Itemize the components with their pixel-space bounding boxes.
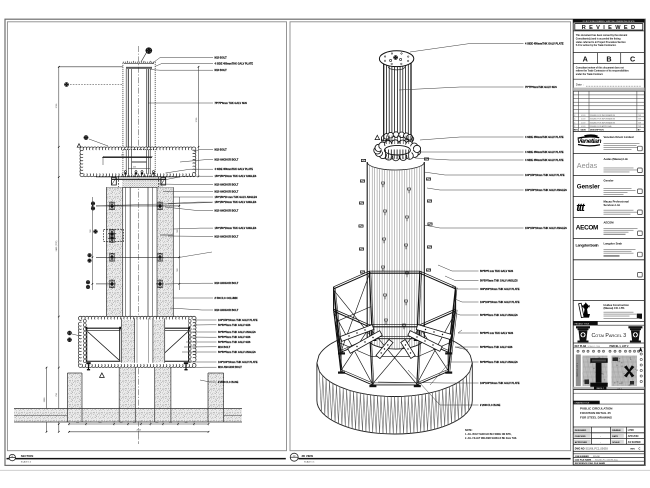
svg-text:Services Ltd.: Services Ltd. (604, 203, 621, 207)
svg-text:75*75*6mm THK GALV SHS: 75*75*6mm THK GALV SHS (215, 102, 248, 105)
svg-text:Venetian: Venetian (577, 138, 601, 145)
svg-text:C: C (639, 447, 641, 451)
svg-text:NOTE:: NOTE: (465, 429, 473, 432)
svg-text:M10 BOLT: M10 BOLT (218, 346, 231, 349)
svg-text:M10 BOLT: M10 BOLT (215, 69, 228, 72)
svg-text:3D VIEW: 3D VIEW (302, 454, 314, 458)
svg-text:M10 ANCHOR BOLT: M10 ANCHOR BOLT (215, 191, 239, 194)
svg-text:TW: TW (638, 122, 641, 124)
svg-text:300: 300 (155, 422, 158, 424)
svg-text:01/09: 01/09 (581, 115, 586, 117)
svg-text:4 SIDE 450mmTHK GALV PLATE: 4 SIDE 450mmTHK GALV PLATE (525, 43, 564, 46)
svg-text:Consultants(s) and is accorded: Consultants(s) and is accorded the listi… (576, 38, 621, 41)
svg-text:This document has been revised: This document has been revised by the re… (576, 34, 628, 37)
svg-text:(Macau) CO. LTD.: (Macau) CO. LTD. (604, 306, 626, 310)
svg-text:M10 ANCHOR BOLT: M10 ANCHOR BOLT (215, 235, 239, 238)
svg-text:Aedas: Aedas (577, 161, 598, 170)
svg-text:Consultant review of this docu: Consultant review of this document does … (576, 66, 624, 69)
svg-text:FOUNTAIN DETAIL 25: FOUNTAIN DETAIL 25 (580, 411, 611, 415)
svg-text:500: 500 (90, 228, 92, 232)
svg-text:4 SIDE 450mmTHK GALV PLATE: 4 SIDE 450mmTHK GALV PLATE (525, 159, 564, 162)
svg-text:50*50*5mm THK GALV ANGLES: 50*50*5mm THK GALV ANGLES (480, 280, 518, 283)
svg-text:M10 ANCHOR BOLT: M10 ANCHOR BOLT (215, 309, 239, 312)
svg-text:DRAWN: DRAWN (612, 429, 621, 432)
svg-text:01/09: 01/09 (581, 119, 586, 121)
svg-text:M10 ANCHOR BOLT: M10 ANCHOR BOLT (215, 184, 239, 187)
svg-text:Date :: Date : (576, 83, 584, 87)
svg-text:500: 500 (177, 267, 179, 271)
svg-text:450: 450 (133, 422, 136, 424)
svg-text:COTAI PARCEL 3: COTAI PARCEL 3 (591, 333, 626, 339)
svg-text:1796: 1796 (196, 117, 198, 122)
svg-text:150*150*10 mm THK GALV ANGLES: 150*150*10 mm THK GALV ANGLES (215, 196, 258, 199)
svg-text:300: 300 (76, 422, 79, 424)
svg-text:Langdon Seah: Langdon Seah (604, 242, 623, 246)
svg-text:300: 300 (120, 422, 123, 424)
svg-text:SCALE 1:7500: SCALE 1:7500 (588, 345, 601, 348)
svg-text:2864: 2864 (136, 429, 141, 431)
svg-text:100*100*10mm THK GALV PLATE: 100*100*10mm THK GALV PLATE (218, 361, 258, 364)
svg-text:4 SIDE 450mmTHK GALV PLATE: 4 SIDE 450mmTHK GALV PLATE (215, 168, 254, 171)
svg-text:ISSUED FOR INFORMATION: ISSUED FOR INFORMATION (590, 121, 616, 124)
svg-text:C: C (630, 55, 635, 64)
svg-text:5.4 for action by the Trade Co: 5.4 for action by the Trade Contractor. (576, 44, 617, 47)
svg-text:75*75*6mmTHK GALV SHS: 75*75*6mmTHK GALV SHS (525, 86, 557, 89)
svg-text:1500: 1500 (44, 397, 46, 402)
svg-text:Gensler: Gensler (604, 179, 614, 183)
svg-text:SECTION: SECTION (21, 454, 33, 458)
svg-text:ISSUED FOR INFORMATION: ISSUED FOR INFORMATION (590, 118, 616, 121)
svg-text:-: - (600, 441, 601, 444)
svg-text:status referred to in Projec: status referred to in Project Procedure … (576, 41, 627, 44)
svg-text:150*150*10mm THK GALV ANGLES: 150*150*10mm THK GALV ANGLES (215, 227, 257, 230)
svg-text:Venetian Orient Limited: Venetian Orient Limited (604, 135, 634, 139)
svg-text:A: A (583, 55, 588, 64)
svg-text:M10 BOLT: M10 BOLT (215, 57, 228, 60)
svg-text:50*50*5mm THK GALV SHS: 50*50*5mm THK GALV SHS (218, 324, 251, 327)
svg-text:TW: TW (638, 119, 641, 121)
svg-text:APR 2009: APR 2009 (628, 435, 639, 438)
svg-text:50*50*5mm THK GALV SHS: 50*50*5mm THK GALV SHS (218, 341, 251, 344)
svg-text:864: 864 (169, 422, 172, 424)
svg-text:-: - (600, 435, 601, 438)
svg-text:50*50*5mm THK GALV ANGLES: 50*50*5mm THK GALV ANGLES (218, 351, 256, 354)
svg-text:LangdonSeah: LangdonSeah (576, 244, 600, 248)
svg-text:450: 450 (133, 166, 136, 168)
svg-text:# 500 R.C COLUMN: # 500 R.C COLUMN (215, 297, 238, 300)
svg-text:01/09: 01/09 (581, 122, 586, 124)
svg-text:S15/08_PC2_05/093: S15/08_PC2_05/093 (586, 448, 609, 451)
svg-text:M10 BOLT: M10 BOLT (215, 149, 228, 152)
svg-text:relieve the Trade Contractor o: relieve the Trade Contractor of its resp… (576, 70, 630, 73)
svg-text:LYND: LYND (628, 430, 634, 432)
svg-text:AECOM: AECOM (576, 225, 598, 232)
svg-text:REV: REV (631, 449, 636, 451)
svg-text:KEY PLAN: KEY PLAN (575, 345, 587, 348)
svg-text:M10 ANCHOR BOLT: M10 ANCHOR BOLT (215, 282, 239, 285)
svg-text:PUBLIC CIRCULATION: PUBLIC CIRCULATION (580, 407, 612, 411)
svg-text:Gensler: Gensler (577, 184, 601, 191)
svg-text:FOR STEEL DRAWING: FOR STEEL DRAWING (580, 415, 613, 419)
svg-text:DWG NO: DWG NO (575, 449, 585, 451)
svg-text:# 2000 R.C BASE: # 2000 R.C BASE (218, 381, 239, 384)
svg-text:50*50*5mm THK GALV ANGLES: 50*50*5mm THK GALV ANGLES (480, 314, 518, 317)
svg-text:PARCEL 1, LOT 1: PARCEL 1, LOT 1 (576, 363, 579, 377)
svg-text:50*50*5 mm THK GALV SHS: 50*50*5 mm THK GALV SHS (480, 332, 513, 335)
svg-text:M10 ANCHOR BOLT: M10 ANCHOR BOLT (218, 366, 242, 369)
svg-text:01/09: 01/09 (581, 126, 586, 128)
svg-text:864: 864 (99, 422, 102, 424)
svg-text:R E V I E W E D: R E V I E W E D (582, 25, 636, 31)
svg-text:50*50*5mm THK GALV SHS: 50*50*5mm THK GALV SHS (480, 346, 513, 349)
svg-text:100*150*10mm THK GALV PLATE: 100*150*10mm THK GALV PLATE (218, 319, 258, 322)
svg-text:TW: TW (638, 115, 641, 117)
svg-text:01: 01 (11, 456, 13, 458)
svg-text:50*50*5mm THK GALV ANGLES: 50*50*5mm THK GALV ANGLES (218, 331, 256, 334)
svg-text:50*50*5 mm THK GALV SHS: 50*50*5 mm THK GALV SHS (480, 270, 513, 273)
svg-text:B: B (606, 55, 611, 64)
svg-text:AS SHOWN: AS SHOWN (628, 441, 641, 444)
svg-text:SCALE 1:5: SCALE 1:5 (304, 461, 315, 464)
svg-text:100*100*10mm THK GALV PLATE: 100*100*10mm THK GALV PLATE (480, 301, 520, 304)
svg-text:Aedas (Macau) Ltd.: Aedas (Macau) Ltd. (604, 157, 629, 161)
svg-text:AECOM: AECOM (604, 221, 615, 225)
svg-text:50*50*5mm THK GALV SHS: 50*50*5mm THK GALV SHS (218, 336, 251, 339)
svg-text:1796: 1796 (56, 103, 58, 108)
svg-text:150*150*10mm THK GALV ANGLES: 150*150*10mm THK GALV ANGLES (215, 175, 257, 178)
svg-text:DATE: DATE (612, 435, 618, 438)
svg-text:100*150*10mm THK GALV PLATE: 100*150*10mm THK GALV PLATE (525, 174, 565, 177)
svg-text:SCALE: SCALE (612, 441, 620, 444)
svg-text:2805 (TYP): 2805 (TYP) (56, 240, 58, 251)
svg-text:750: 750 (56, 392, 58, 396)
svg-text:PARCEL 1, LOT 2: PARCEL 1, LOT 2 (610, 345, 630, 348)
svg-text:300: 300 (185, 422, 188, 424)
svg-text:M10 ANCHOR BOLT: M10 ANCHOR BOLT (215, 159, 239, 162)
svg-text:APPROVED: APPROVED (575, 441, 588, 444)
svg-text:ISSUED FOR INFORMATION: ISSUED FOR INFORMATION (590, 114, 616, 117)
svg-text:2. ALL FILLET WELDED SHOULD BE: 2. ALL FILLET WELDED SHOULD BE 3mm THK. (465, 437, 517, 440)
svg-text:4 SIDE 450mmTHK GALV PLATE: 4 SIDE 450mmTHK GALV PLATE (525, 151, 564, 154)
svg-text:M10 ANCHOR BOLT: M10 ANCHOR BOLT (215, 209, 239, 212)
svg-text:150*150*10mm THK GALV ANGLES: 150*150*10mm THK GALV ANGLES (525, 227, 567, 230)
svg-text:SCALE 1:5: SCALE 1:5 (21, 461, 32, 464)
svg-text:CAD FILE NAME: CAD FILE NAME (575, 458, 592, 461)
svg-text:DO NOT SCALE DRAWING. VERIFY A: DO NOT SCALE DRAWING. VERIFY ALL DIMENSI… (583, 20, 636, 23)
svg-text:# 2000 R.C BASE: # 2000 R.C BASE (480, 404, 501, 407)
svg-text:4 SIDE 450mmTHK GALV PLATE: 4 SIDE 450mmTHK GALV PLATE (215, 62, 254, 65)
svg-text:100*100*10mm THK GALV PLATE: 100*100*10mm THK GALV PLATE (480, 382, 520, 385)
svg-text:150*150*10mm THK GALV ANGLES: 150*150*10mm THK GALV ANGLES (525, 189, 567, 192)
svg-text:400*200*10mm THK GALV PLATE: 400*200*10mm THK GALV PLATE (480, 288, 520, 291)
svg-text:CHECKED: CHECKED (575, 436, 586, 438)
svg-text:1. ALL BOLT SHOULD BE FIXING O: 1. ALL BOLT SHOULD BE FIXING ON SITE, (465, 433, 512, 436)
svg-text:REFERENCE DWG FILE NAME: REFERENCE DWG FILE NAME (575, 462, 606, 465)
svg-text:50*50*5mm THK GALV ANGLES: 50*50*5mm THK GALV ANGLES (480, 361, 518, 364)
svg-text:ttt: ttt (576, 202, 586, 214)
svg-text:4 SIDE 450mmTHK GALV PLATE: 4 SIDE 450mmTHK GALV PLATE (525, 136, 564, 139)
svg-text:150*150*10mm THK GALV ANGLES: 150*150*10mm THK GALV ANGLES (215, 201, 257, 204)
svg-text:DESIGNED: DESIGNED (575, 430, 587, 432)
svg-text:under the Trade Contract.: under the Trade Contract. (576, 73, 604, 76)
svg-text:TW: TW (638, 126, 641, 128)
svg-text:ISSUED FOR APPROVAL: ISSUED FOR APPROVAL (590, 125, 612, 128)
